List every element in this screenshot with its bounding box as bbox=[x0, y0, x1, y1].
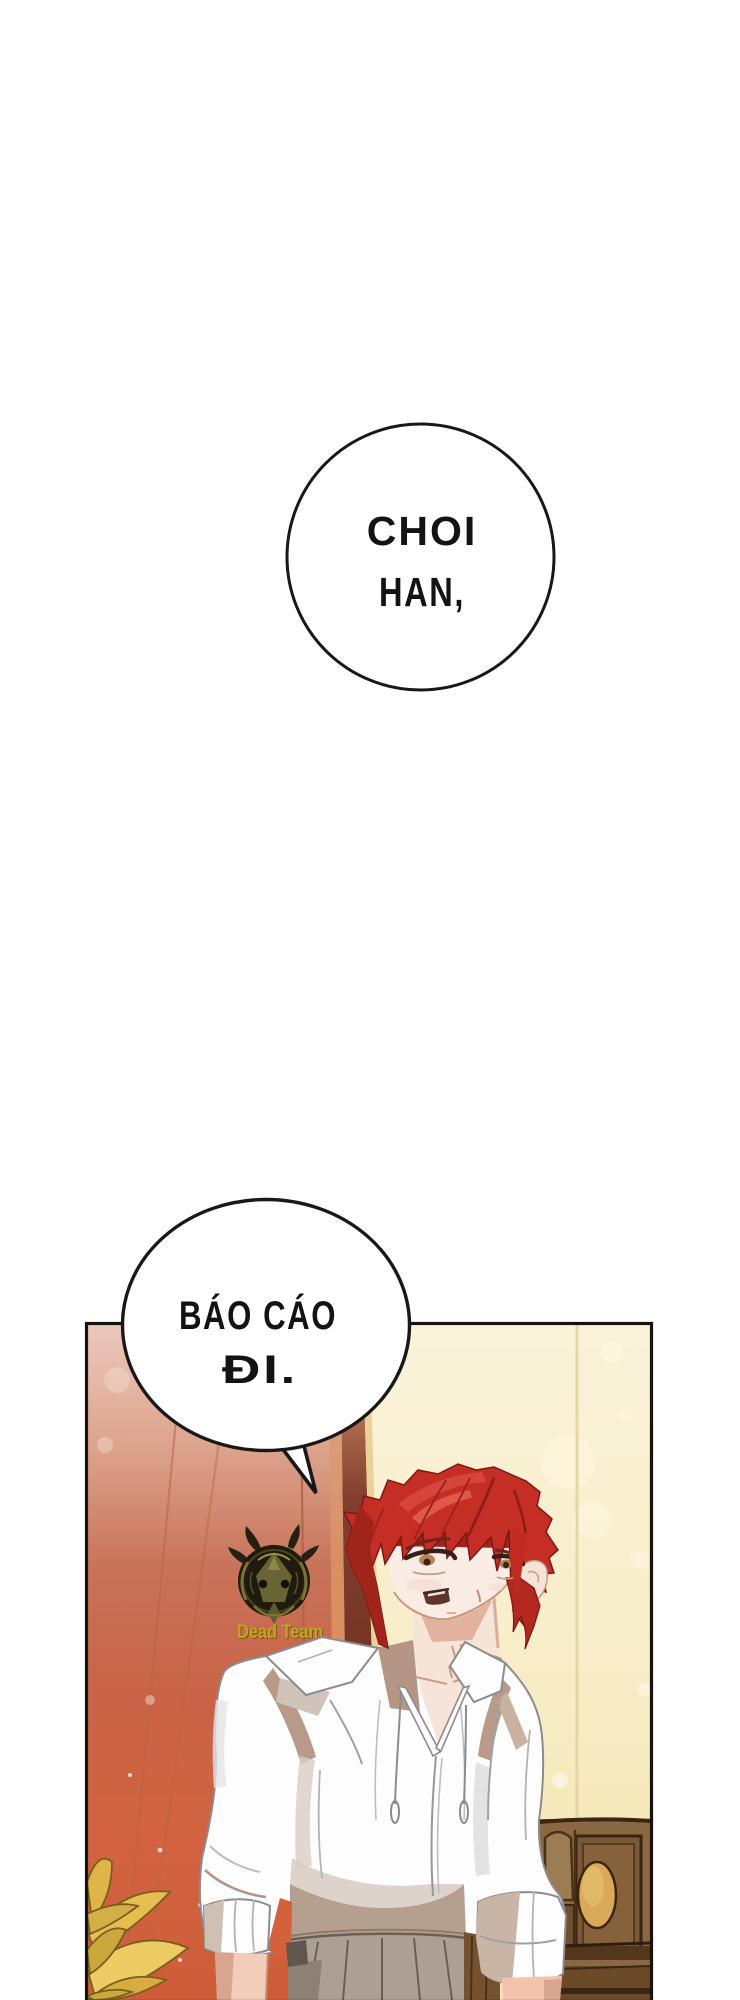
svg-text:BÁO CÁO: BÁO CÁO bbox=[179, 1293, 337, 1338]
svg-text:CHOI: CHOI bbox=[367, 508, 478, 554]
svg-text:ĐI.: ĐI. bbox=[222, 1348, 298, 1392]
svg-text:Dead Team: Dead Team bbox=[237, 1622, 323, 1643]
svg-text:HAN,: HAN, bbox=[379, 569, 465, 615]
